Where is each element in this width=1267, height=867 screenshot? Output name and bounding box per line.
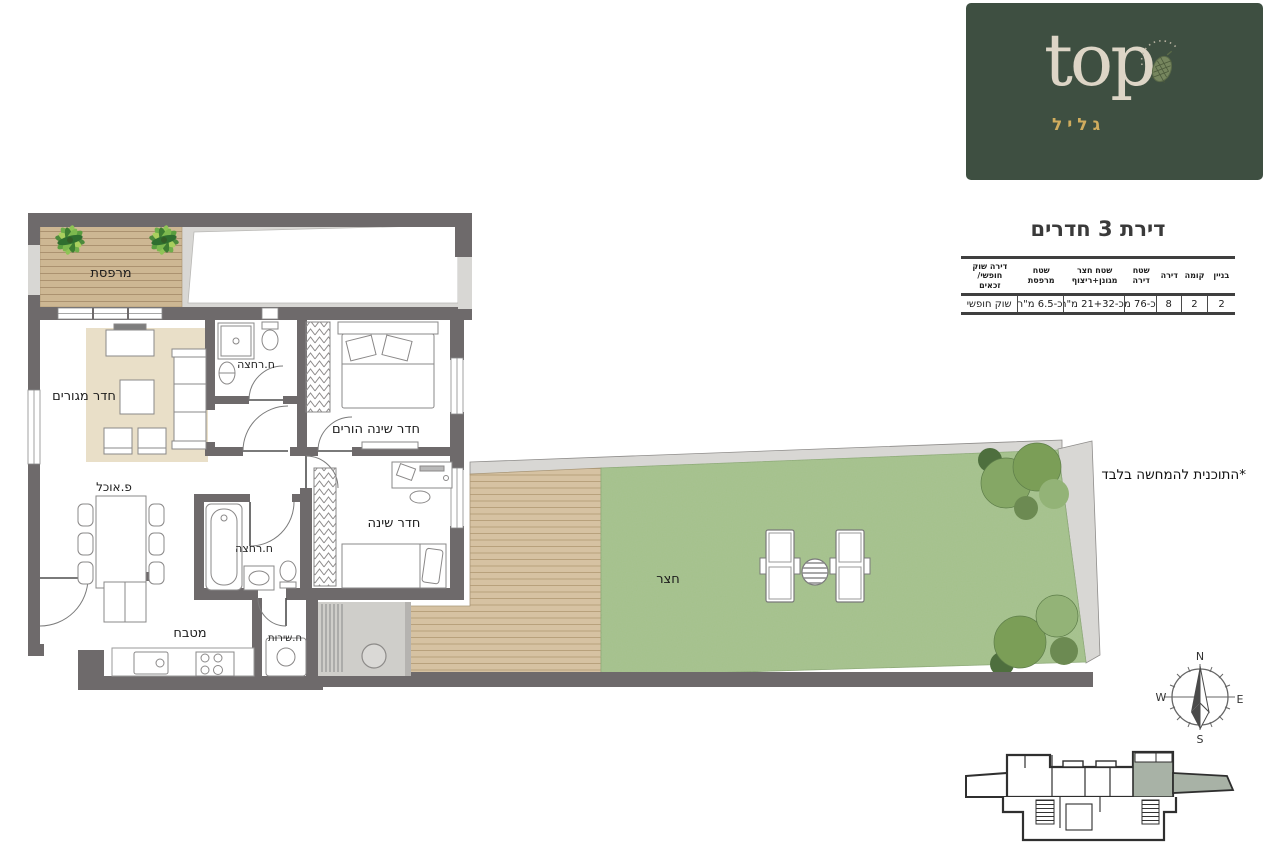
brand-logo: top גליל xyxy=(966,3,1263,180)
fridge xyxy=(104,582,146,622)
patio xyxy=(318,602,411,676)
shower xyxy=(218,323,254,359)
compass-s: S xyxy=(1197,733,1204,746)
floor-value: 2 xyxy=(1181,296,1207,312)
col-yard-area-header: שטח חצר מגונן+ריצוף xyxy=(1064,259,1126,293)
compass-e: E xyxy=(1237,693,1244,706)
living-label: חדר מגורים xyxy=(52,389,116,404)
double-bed xyxy=(338,322,438,408)
compass-rose: N S W E xyxy=(1156,650,1244,746)
bath2-door xyxy=(250,502,294,546)
bedroom-window xyxy=(451,468,463,528)
service-label: ח.שירות xyxy=(268,633,302,644)
balcony-area-value: כ-6.5 מ"ר xyxy=(1017,296,1062,312)
compass-w: W xyxy=(1156,691,1167,704)
living-window xyxy=(28,390,40,464)
toilet-2 xyxy=(280,561,296,588)
parents-wardrobe xyxy=(306,322,330,412)
pinecone-icon xyxy=(1136,39,1184,91)
coffee-table xyxy=(120,380,154,414)
compass-n: N xyxy=(1196,650,1204,663)
kitchen-label: מטבח xyxy=(173,626,206,641)
single-bed xyxy=(342,544,446,588)
brand-subtitle: גליל xyxy=(1052,115,1105,135)
entrance-door xyxy=(40,578,88,626)
keyplan-highlight-arm xyxy=(1173,773,1233,793)
open-area-top xyxy=(182,213,472,310)
patio-drain xyxy=(362,644,386,668)
bedroom-label: חדר שינה xyxy=(368,516,421,531)
building-value: 2 xyxy=(1207,296,1235,312)
sofa xyxy=(172,349,206,449)
col-floor-header: קומה xyxy=(1182,259,1208,293)
yard-bottom-wall xyxy=(318,672,1093,687)
keyplan-stairs xyxy=(1142,800,1159,824)
col-apartment-area-header: שטח דירה xyxy=(1125,259,1157,293)
desk xyxy=(392,462,452,503)
kitchen-counter xyxy=(112,648,254,676)
apartment: מרפסת חדר מגורים ח.רחצה חדר שינה הורים פ… xyxy=(28,213,472,690)
parents-bedroom-label: חדר שינה הורים xyxy=(332,422,420,437)
balcony-sliding-door xyxy=(58,308,162,319)
spec-table-header: בניין קומה דירה שטח דירה שטח חצר מגונן+ר… xyxy=(961,259,1235,296)
col-building-header: בניין xyxy=(1208,259,1235,293)
market-value: שוק חופשי xyxy=(961,296,1017,312)
apartment-area-value: כ-76 מ"ר xyxy=(1124,296,1156,312)
building-key-plan xyxy=(966,752,1233,840)
yard-area-value: כ-21+32 מ"ר xyxy=(1063,296,1124,312)
bath1-window xyxy=(262,308,278,319)
col-apartment-header: דירה xyxy=(1157,259,1182,293)
balcony-label: מרפסת xyxy=(90,266,131,281)
spec-table: בניין קומה דירה שטח דירה שטח חצר מגונן+ר… xyxy=(961,256,1235,315)
dining-label: פ.אוכל xyxy=(96,480,132,494)
bed-bench xyxy=(362,442,418,449)
col-market-header: דירה שוק חופשי/ זכאים xyxy=(961,259,1019,293)
bath1-door xyxy=(249,366,283,400)
bath1-label: ח.רחצה xyxy=(237,358,275,371)
sink-2 xyxy=(244,566,274,590)
col-balcony-area-header: שטח מרפסת xyxy=(1019,259,1064,293)
page-title: דירת 3 חדרים xyxy=(960,217,1236,241)
dining-set xyxy=(78,496,164,588)
toilet-1 xyxy=(262,322,278,350)
keyplan-stairs xyxy=(1036,800,1054,824)
service-door xyxy=(258,598,286,626)
apartment-value: 8 xyxy=(1156,296,1181,312)
sink-1 xyxy=(219,362,235,384)
parents-window xyxy=(451,358,463,414)
bath2-label: ח.רחצה xyxy=(235,542,273,555)
yard-label: חצר xyxy=(656,572,680,587)
spec-table-row: 2 2 8 כ-76 מ"ר כ-21+32 מ"ר כ-6.5 מ"ר שוק… xyxy=(961,296,1235,312)
disclaimer-note: *התוכנית להמחשה בלבד xyxy=(1020,467,1246,483)
bedroom-wardrobe xyxy=(314,468,336,586)
living-hall-door xyxy=(243,406,288,451)
